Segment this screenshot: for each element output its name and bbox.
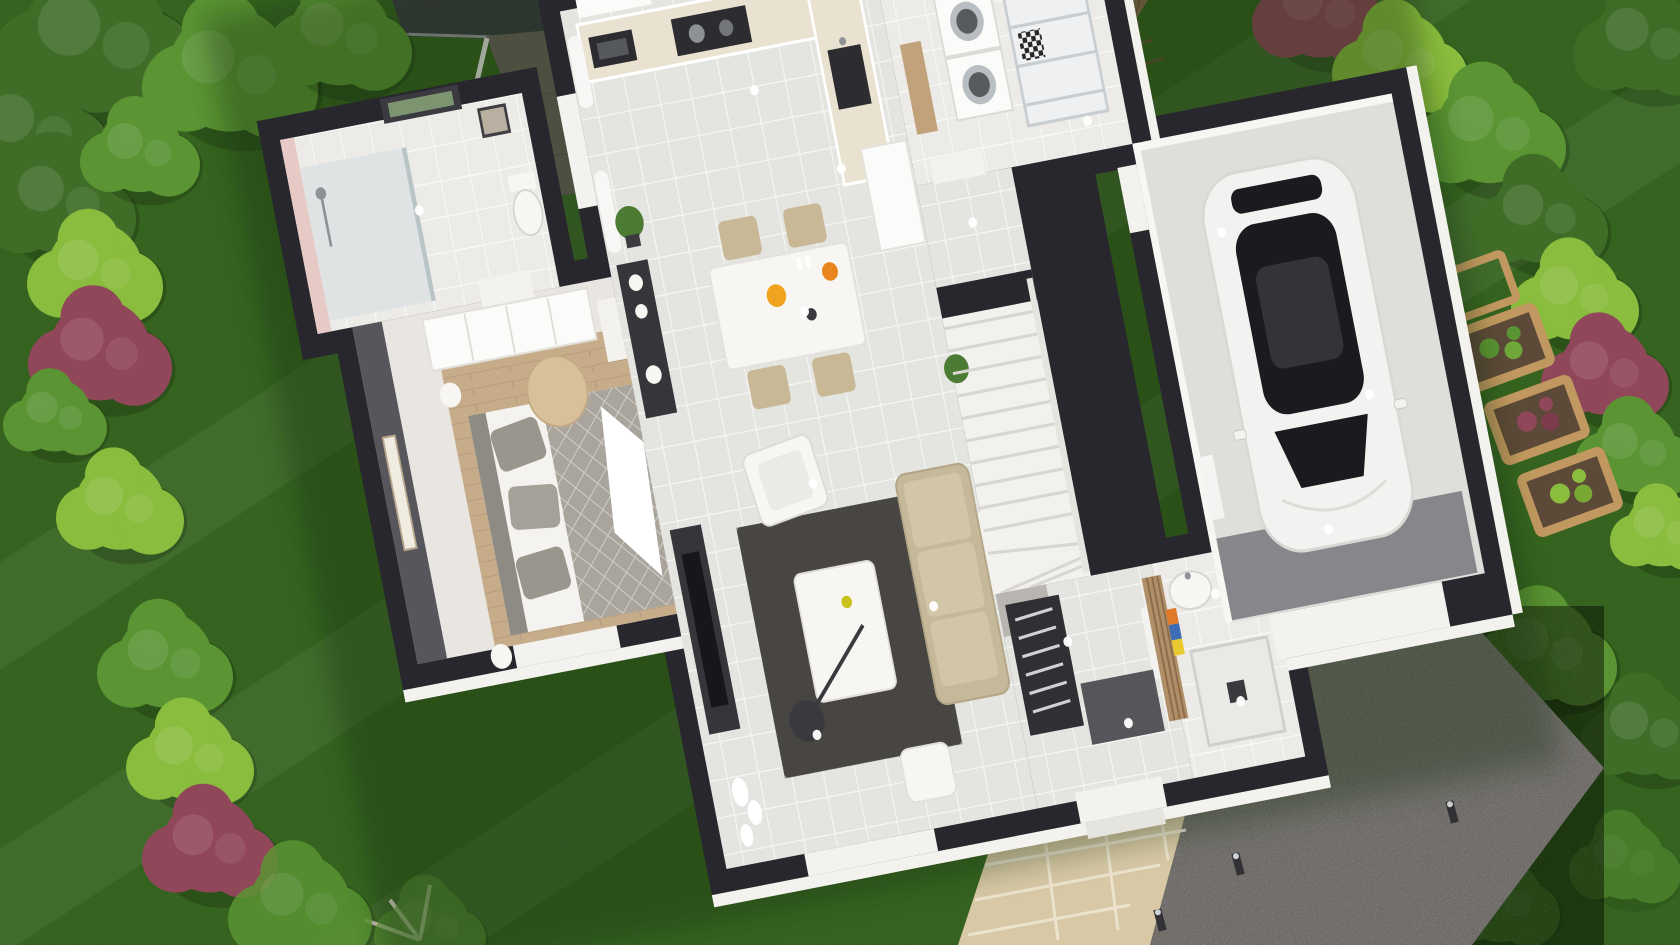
- pouf: [899, 741, 958, 803]
- car-mirror-right: [1394, 398, 1408, 410]
- floorplan-render: [0, 0, 1680, 945]
- towel: [479, 105, 510, 137]
- scene-canvas: [0, 0, 1680, 945]
- car-mirror-left: [1233, 429, 1247, 441]
- plant-pot: [625, 233, 641, 248]
